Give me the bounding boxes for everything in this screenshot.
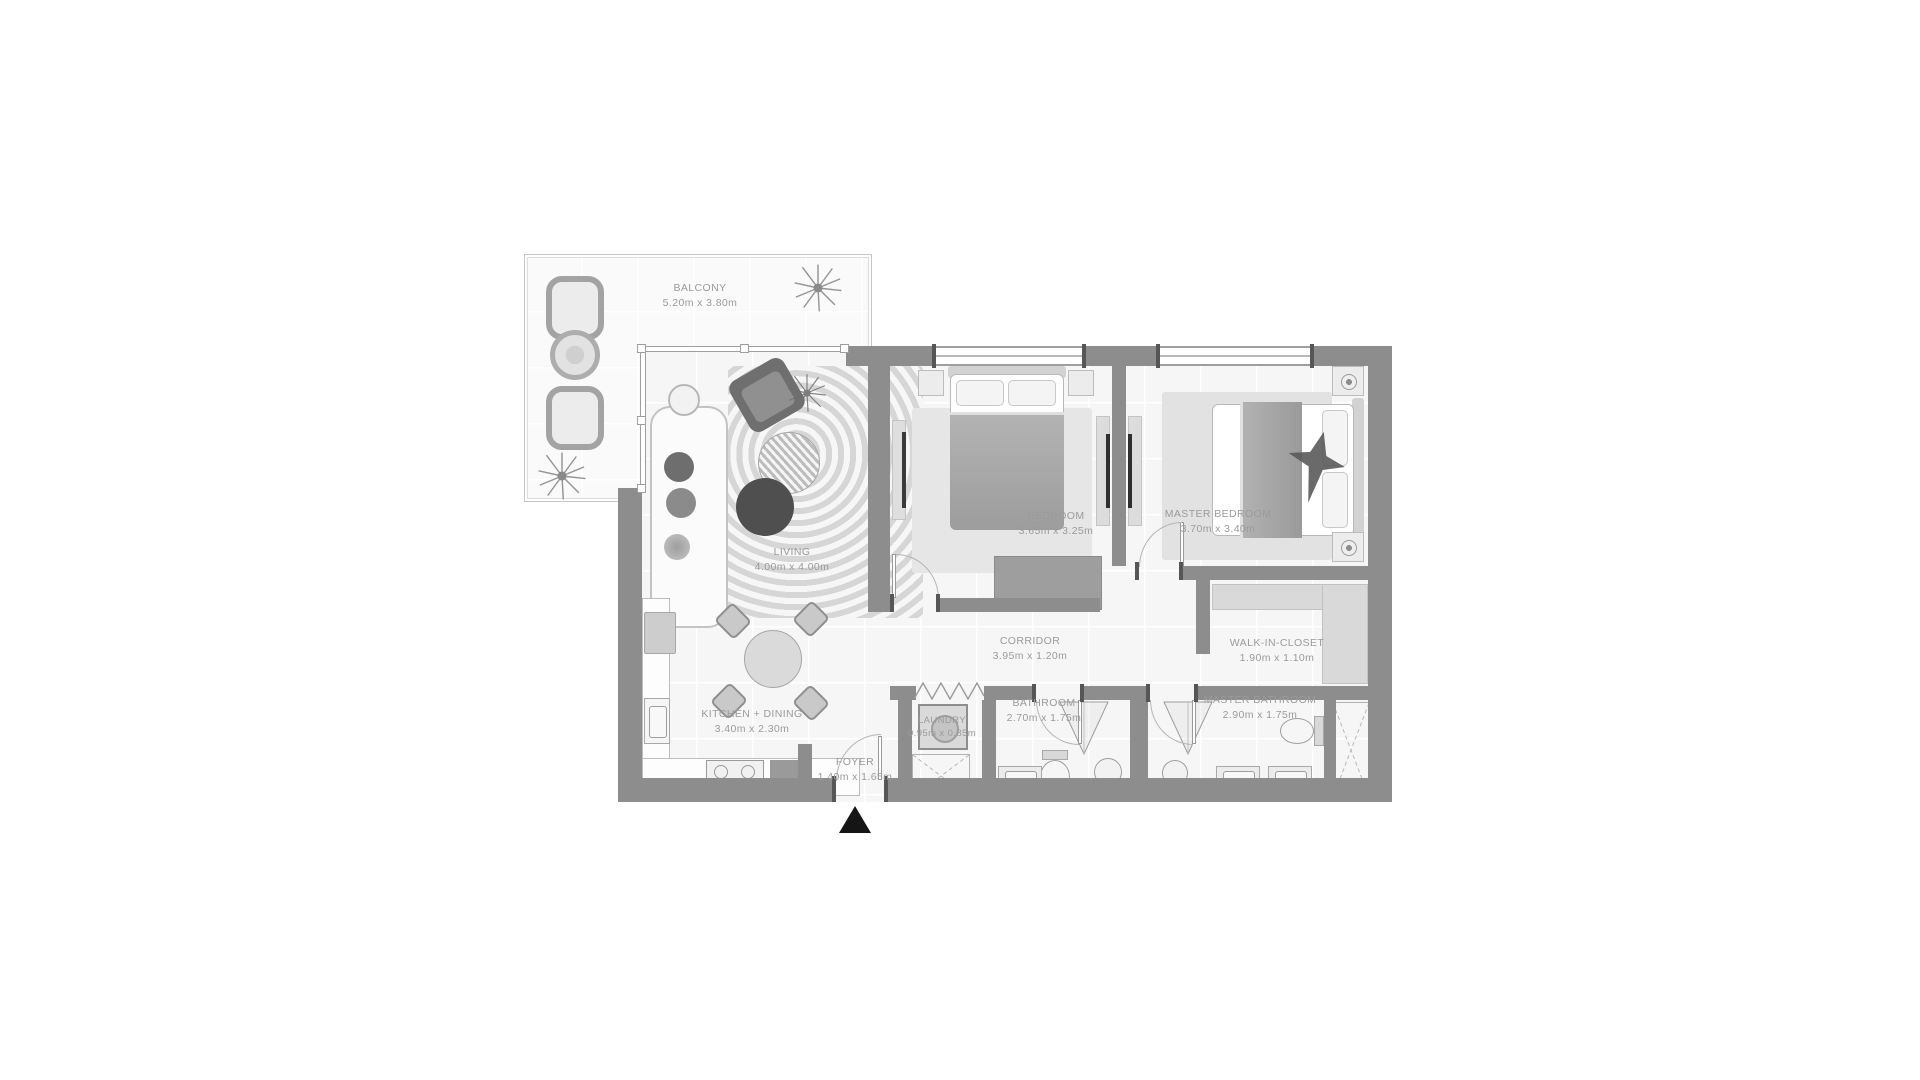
wall bbox=[1368, 346, 1392, 802]
master-bathroom-label: MASTER BATHROOM 2.90m x 1.75m bbox=[1204, 693, 1317, 723]
wall bbox=[1080, 686, 1150, 700]
nightstand bbox=[1332, 366, 1364, 396]
wall bbox=[1196, 580, 1210, 654]
wall bbox=[1112, 366, 1126, 566]
wall bbox=[898, 700, 912, 780]
bedroom-window bbox=[936, 346, 1082, 366]
wall bbox=[1324, 700, 1336, 780]
tv-icon bbox=[1106, 434, 1110, 508]
nightstand bbox=[918, 370, 944, 396]
room-name: CORRIDOR bbox=[993, 634, 1068, 649]
room-dims: 1.90m x 1.10m bbox=[1230, 651, 1324, 666]
tv-icon bbox=[902, 432, 906, 508]
room-name: LAUNDRY bbox=[908, 714, 976, 727]
room-name: BALCONY bbox=[663, 281, 738, 296]
ottoman bbox=[736, 478, 794, 536]
wall bbox=[868, 566, 890, 612]
glass-post bbox=[840, 344, 849, 353]
door-jamb bbox=[1135, 562, 1139, 580]
kitchen-dining-label: KITCHEN + DINING 3.40m x 2.30m bbox=[701, 707, 802, 737]
laundry-label: LAUNDRY 0.95m x 0.85m bbox=[908, 714, 976, 740]
room-dims: 3.40m x 2.30m bbox=[701, 722, 802, 737]
sofa-cushion bbox=[666, 488, 696, 518]
wall bbox=[846, 346, 936, 366]
foyer-label: FOYER 1.40m x 1.65m bbox=[818, 755, 893, 785]
wall bbox=[938, 598, 1100, 612]
room-dims: 4.00m x 4.00m bbox=[755, 560, 830, 575]
nightstand bbox=[1068, 370, 1094, 396]
room-dims: 3.65m x 3.25m bbox=[1019, 524, 1094, 539]
wardrobe bbox=[1322, 584, 1368, 684]
room-name: LIVING bbox=[755, 545, 830, 560]
floor-plan: BALCONY 5.20m x 3.80m LIVING 4.00m x 4.0… bbox=[0, 0, 1920, 1080]
balcony-label: BALCONY 5.20m x 3.80m bbox=[663, 281, 738, 311]
room-dims: 1.40m x 1.65m bbox=[818, 770, 893, 785]
wall bbox=[868, 346, 890, 566]
room-dims: 5.20m x 3.80m bbox=[663, 296, 738, 311]
wall bbox=[890, 686, 916, 700]
wall bbox=[1310, 346, 1392, 366]
plant-icon bbox=[786, 372, 828, 414]
room-name: WALK-IN-CLOSET bbox=[1230, 636, 1324, 651]
side-table bbox=[668, 384, 700, 416]
wall bbox=[1130, 700, 1148, 780]
bedroom-label: BEDROOM 3.65m x 3.25m bbox=[1019, 509, 1094, 539]
master-bedroom-window bbox=[1160, 346, 1310, 366]
glass-post bbox=[637, 344, 646, 353]
room-name: MASTER BEDROOM bbox=[1165, 507, 1272, 522]
window-jamb bbox=[932, 344, 936, 368]
room-name: BEDROOM bbox=[1019, 509, 1094, 524]
room-name: FOYER bbox=[818, 755, 893, 770]
balcony-chair bbox=[546, 386, 604, 450]
fridge bbox=[644, 612, 676, 654]
floor-pot bbox=[664, 534, 690, 560]
tv-icon bbox=[1128, 434, 1132, 508]
room-dims: 3.95m x 1.20m bbox=[993, 649, 1068, 664]
entrance-arrow-icon bbox=[839, 806, 871, 833]
room-name: KITCHEN + DINING bbox=[701, 707, 802, 722]
nightstand bbox=[1332, 532, 1364, 562]
room-name: MASTER BATHROOM bbox=[1204, 693, 1317, 708]
kitchen-sink bbox=[644, 698, 670, 744]
toilet bbox=[1042, 750, 1068, 760]
room-name: BATHROOM bbox=[1007, 696, 1082, 711]
walk-in-closet-label: WALK-IN-CLOSET 1.90m x 1.10m bbox=[1230, 636, 1324, 666]
door-jamb bbox=[1179, 562, 1183, 580]
window-jamb bbox=[1310, 344, 1314, 368]
plant-icon bbox=[534, 450, 590, 502]
wall bbox=[618, 488, 642, 802]
wall bbox=[982, 700, 996, 780]
room-dims: 2.90m x 1.75m bbox=[1204, 708, 1317, 723]
pillow bbox=[1008, 380, 1056, 406]
sofa-cushion bbox=[664, 452, 694, 482]
door-jamb bbox=[890, 594, 894, 612]
plant-icon bbox=[792, 262, 844, 314]
room-dims: 3.70m x 3.40m bbox=[1165, 522, 1272, 537]
window-jamb bbox=[1156, 344, 1160, 368]
master-bedroom-label: MASTER BEDROOM 3.70m x 3.40m bbox=[1165, 507, 1272, 537]
window-jamb bbox=[1082, 344, 1086, 368]
wall bbox=[798, 744, 812, 802]
living-label: LIVING 4.00m x 4.00m bbox=[755, 545, 830, 575]
pillow bbox=[956, 380, 1004, 406]
wall bbox=[1082, 346, 1160, 366]
balcony-table bbox=[550, 330, 600, 380]
bifold-door-icon bbox=[914, 682, 984, 700]
glass-post bbox=[740, 344, 749, 353]
door-jamb bbox=[936, 594, 940, 612]
wall bbox=[1183, 566, 1370, 580]
wall bbox=[884, 778, 1392, 802]
door-jamb bbox=[1146, 684, 1150, 702]
glass-post bbox=[637, 484, 646, 493]
sofa bbox=[650, 406, 728, 628]
room-dims: 0.95m x 0.85m bbox=[908, 727, 976, 740]
corridor-label: CORRIDOR 3.95m x 1.20m bbox=[993, 634, 1068, 664]
dining-table bbox=[744, 630, 802, 688]
glass-post bbox=[637, 416, 646, 425]
room-dims: 2.70m x 1.75m bbox=[1007, 711, 1082, 726]
door-jamb bbox=[1194, 684, 1198, 702]
bathroom-label: BATHROOM 2.70m x 1.75m bbox=[1007, 696, 1082, 726]
